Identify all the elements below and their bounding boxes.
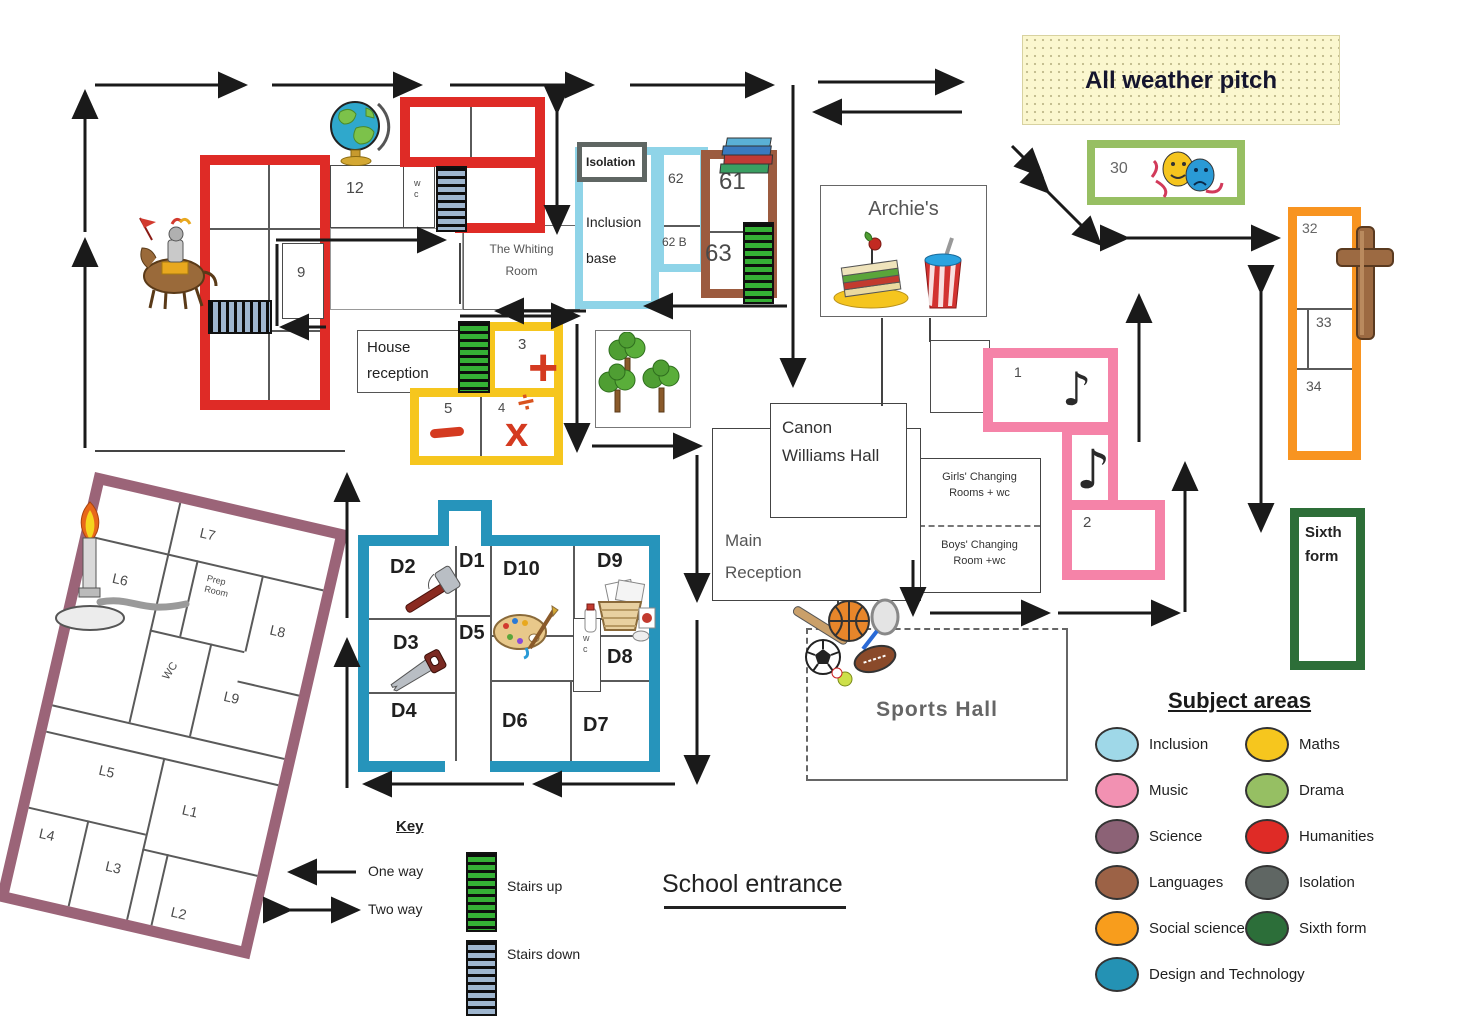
hammer-icon bbox=[398, 563, 470, 623]
key-title: Key bbox=[396, 818, 424, 835]
legend-item: Design and Technology bbox=[1095, 958, 1355, 990]
isolation-room: Isolation bbox=[577, 142, 647, 182]
room-3: 3 bbox=[518, 336, 526, 353]
room-d7: D7 bbox=[583, 714, 609, 737]
legend-item: Drama bbox=[1245, 774, 1445, 806]
cross-icon bbox=[1333, 223, 1397, 345]
legend-swatch bbox=[1245, 727, 1289, 762]
humanities-block-b1 bbox=[400, 97, 545, 167]
legend-swatch bbox=[1245, 865, 1289, 900]
room-63: 63 bbox=[705, 240, 732, 268]
room-1: 1 bbox=[1014, 364, 1022, 380]
school-map: 10 11 8 9 7 6 12 w c 13 15 14 The Whitin… bbox=[0, 0, 1473, 1022]
room-l5: L5 bbox=[97, 762, 116, 781]
craft-supplies-icon bbox=[583, 576, 657, 648]
music-note-icon: ♪ bbox=[1062, 362, 1091, 416]
maths-block-bottom bbox=[410, 388, 563, 465]
sports-hall-label: Sports Hall bbox=[808, 698, 1066, 722]
dt-entry-stub bbox=[438, 500, 492, 546]
legend-swatch bbox=[1095, 957, 1139, 992]
school-entrance-underline bbox=[664, 906, 846, 909]
archies-label: Archie's bbox=[821, 198, 986, 221]
corridor-outline bbox=[330, 228, 463, 310]
wc-room: w c bbox=[403, 165, 435, 228]
legend-item: Isolation bbox=[1245, 866, 1445, 898]
room-d10: D10 bbox=[503, 558, 540, 581]
stairs-up-icon bbox=[743, 222, 774, 304]
trees-box bbox=[595, 330, 691, 428]
legend-item: Sixth form bbox=[1245, 912, 1445, 944]
stairs-down-icon bbox=[436, 166, 467, 232]
science-wc-label: WC bbox=[160, 660, 180, 682]
legend-swatch bbox=[1095, 865, 1139, 900]
all-weather-pitch: All weather pitch bbox=[1022, 35, 1340, 125]
key-arrows bbox=[290, 872, 358, 910]
inclusion-label: Inclusion bbox=[586, 214, 641, 230]
books-icon bbox=[716, 134, 778, 178]
stairs-up-icon bbox=[466, 852, 497, 932]
canon-williams-hall: Canon Williams Hall bbox=[770, 403, 907, 518]
plus-symbol: + bbox=[528, 338, 558, 398]
legend-swatch bbox=[1245, 773, 1289, 808]
palette-icon bbox=[490, 596, 560, 660]
globe-icon bbox=[322, 98, 392, 168]
times-symbol: x bbox=[505, 408, 528, 456]
whiting-room-label: The Whiting bbox=[464, 242, 579, 256]
room-d9: D9 bbox=[597, 550, 623, 573]
humanities-block-b2 bbox=[455, 158, 545, 233]
room-d6: D6 bbox=[502, 710, 528, 733]
key-stairs-down-label: Stairs down bbox=[507, 946, 580, 962]
drink-icon bbox=[918, 232, 968, 314]
legend-item: Humanities bbox=[1245, 820, 1445, 852]
room-l4: L4 bbox=[38, 825, 57, 844]
music-note-icon: ♪ bbox=[1076, 438, 1110, 501]
room-l8: L8 bbox=[268, 622, 287, 641]
room-l1: L1 bbox=[181, 802, 200, 821]
whiting-room: The Whiting Room bbox=[463, 225, 580, 310]
main-reception-label: Main bbox=[725, 531, 762, 551]
drama-masks-icon bbox=[1146, 147, 1228, 199]
saw-icon bbox=[386, 648, 452, 704]
music-block-3 bbox=[1062, 500, 1165, 580]
canon-hall-label: Canon bbox=[782, 418, 832, 438]
school-entrance-label: School entrance bbox=[662, 870, 843, 899]
room-33: 33 bbox=[1316, 314, 1332, 330]
legend-swatch bbox=[1095, 727, 1139, 762]
room-32: 32 bbox=[1302, 220, 1318, 236]
room-30: 30 bbox=[1110, 160, 1128, 178]
room-12: 12 bbox=[330, 165, 404, 228]
room-62: 62 bbox=[668, 170, 684, 186]
sixth-form-label: Sixth bbox=[1305, 524, 1342, 541]
room-l3: L3 bbox=[104, 858, 123, 877]
changing-rooms: Girls' Changing Rooms + wc Boys' Changin… bbox=[918, 458, 1041, 593]
music-block-1 bbox=[983, 348, 1118, 432]
stairs-up-icon bbox=[458, 321, 490, 393]
legend-item: Maths bbox=[1245, 728, 1445, 760]
isolation-label: Isolation bbox=[586, 155, 635, 169]
sandwich-icon bbox=[828, 228, 914, 312]
bunsen-burner-icon bbox=[48, 500, 198, 640]
room-d8: D8 bbox=[607, 646, 633, 669]
room-62b: 62 B bbox=[662, 235, 687, 249]
key-one-way-label: One way bbox=[368, 863, 423, 879]
key-two-way-label: Two way bbox=[368, 901, 422, 917]
legend-swatch bbox=[1095, 819, 1139, 854]
room-l7: L7 bbox=[198, 524, 217, 543]
girls-changing-label: Girls' Changing Rooms + wc bbox=[919, 471, 1040, 499]
all-weather-pitch-label: All weather pitch bbox=[1023, 36, 1339, 126]
prep-room-label: PrepRoom bbox=[203, 573, 231, 600]
knight-icon bbox=[122, 210, 220, 310]
legend-swatch bbox=[1095, 773, 1139, 808]
boys-changing-label: Boys' Changing Room +wc bbox=[919, 539, 1040, 567]
subject-areas-legend-col2: Maths Drama Humanities Isolation Sixth f… bbox=[1245, 728, 1445, 958]
room-34: 34 bbox=[1306, 378, 1322, 394]
subject-areas-title: Subject areas bbox=[1168, 688, 1311, 714]
link-room bbox=[930, 340, 990, 413]
legend-swatch bbox=[1095, 911, 1139, 946]
trees-icon bbox=[597, 332, 689, 424]
room-9: 9 bbox=[282, 243, 324, 319]
room-l2: L2 bbox=[169, 904, 188, 923]
room-l9: L9 bbox=[222, 688, 241, 707]
room-2: 2 bbox=[1083, 514, 1091, 531]
stairs-down-icon bbox=[466, 940, 497, 1016]
room-d5: D5 bbox=[459, 622, 485, 645]
sports-equipment-icon bbox=[793, 593, 911, 695]
key-stairs-up-label: Stairs up bbox=[507, 878, 562, 894]
room-5: 5 bbox=[444, 400, 452, 417]
legend-swatch bbox=[1245, 819, 1289, 854]
house-reception-label: House bbox=[367, 339, 410, 356]
legend-swatch bbox=[1245, 911, 1289, 946]
